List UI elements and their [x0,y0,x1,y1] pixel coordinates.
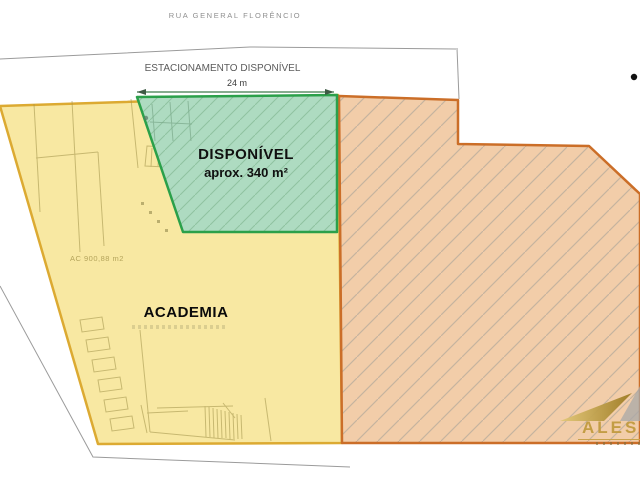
neighbor-area-hatch [339,96,640,443]
neighbor-area-group [339,96,640,443]
available-area-title: DISPONÍVEL [175,146,317,163]
watermark-text: ALESS [582,418,640,438]
academia-label: ACADEMIA [118,304,254,321]
academia-area-note: AC 900,88 m2 [70,254,170,263]
street-label: RUA GENERAL FLORÊNCIO [140,11,330,20]
watermark-underline [578,439,640,440]
dimension-arrow-left [137,89,146,95]
dimension-label: 24 m [198,78,276,88]
available-area-size: aprox. 340 m² [168,165,324,180]
parking-label: ESTACIONAMENTO DISPONÍVEL [120,63,325,74]
watermark-subtext-marks [596,442,640,445]
bullet-dot [631,74,637,80]
academia-subtext-smudge [132,325,228,329]
site-plan: RUA GENERAL FLORÊNCIO ESTACIONAMENTO DIS… [0,0,640,480]
